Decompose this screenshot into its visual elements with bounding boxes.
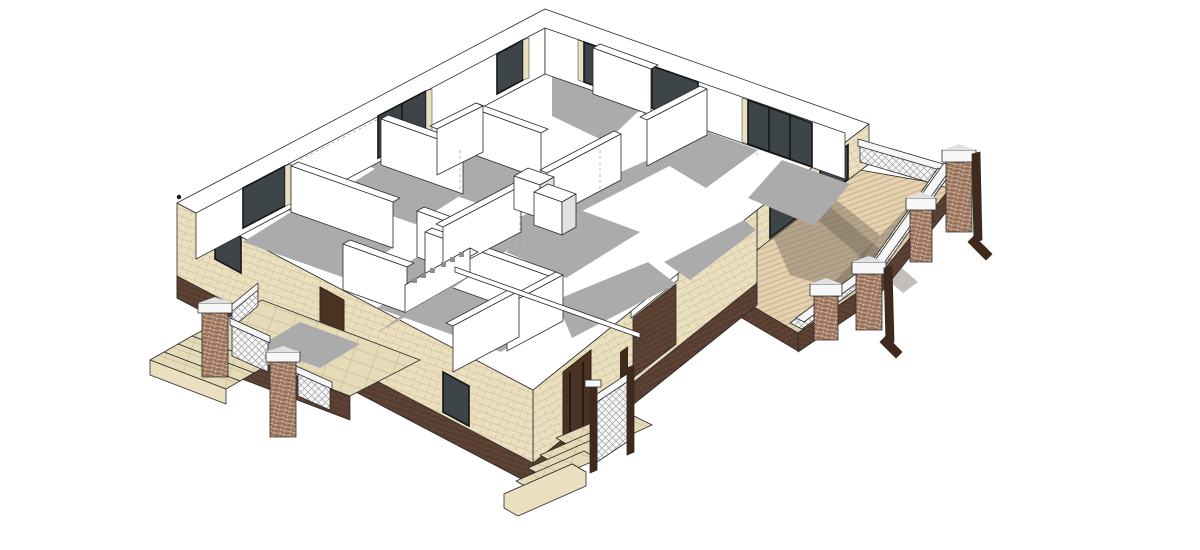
porch-pillar xyxy=(266,346,300,437)
corner-finial xyxy=(177,195,181,199)
stair-post xyxy=(627,365,634,455)
deck-pillar xyxy=(906,192,936,262)
house-3d-render xyxy=(0,0,1200,550)
deck-pillar xyxy=(810,278,842,340)
porch-pillar xyxy=(198,297,232,377)
stair-post xyxy=(590,385,597,473)
newel-cap xyxy=(585,380,601,387)
model-viewport[interactable] xyxy=(0,0,1200,550)
